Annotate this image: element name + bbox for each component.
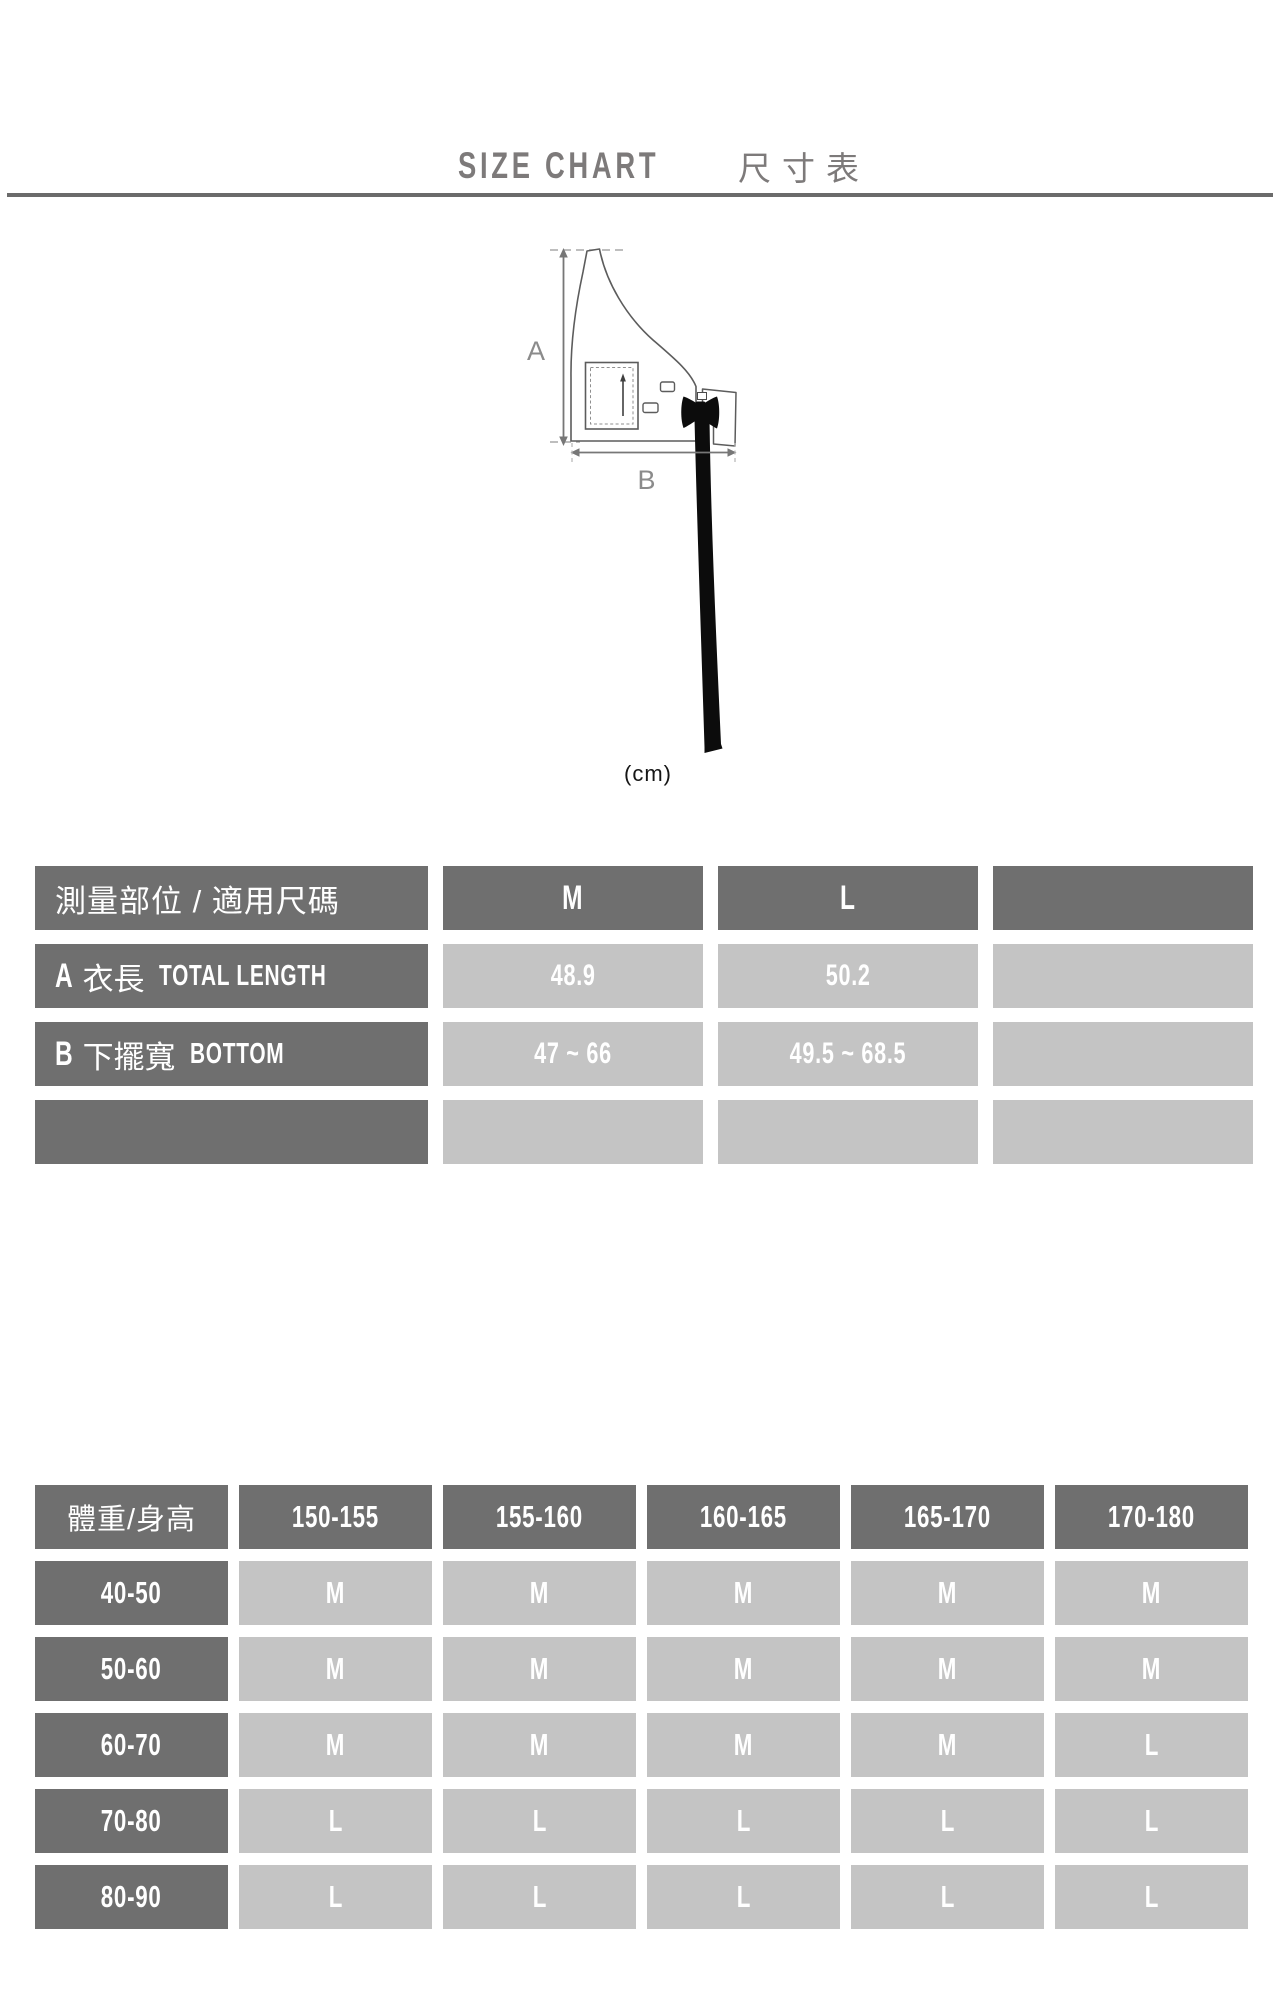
matrix-row-label-50-60: 50-60	[35, 1637, 228, 1701]
measure-value-bottom-m: 47 ~ 66	[443, 1022, 703, 1086]
bottom-width-arrow	[571, 443, 737, 464]
measure-header-label-text: 測量部位 / 適用尺碼	[55, 876, 340, 921]
matrix-row-label-80-90: 80-90	[35, 1865, 228, 1929]
matrix-cell: M	[239, 1561, 432, 1625]
matrix-header-label: 體重/身高	[35, 1485, 228, 1549]
matrix-cell: L	[443, 1789, 636, 1853]
matrix-cell: L	[647, 1789, 840, 1853]
matrix-cell: L	[1055, 1713, 1248, 1777]
matrix-cell: L	[239, 1865, 432, 1929]
height-weight-size-table: 體重/身高 150-155 155-160 160-165 165-170 17…	[35, 1485, 1248, 1929]
title-divider	[7, 193, 1273, 197]
loop-lower	[643, 403, 658, 413]
loop-upper	[661, 382, 675, 392]
measure-value-empty-m	[443, 1100, 703, 1164]
matrix-cell: M	[443, 1561, 636, 1625]
measure-header-empty	[993, 866, 1253, 930]
measure-header-label: 測量部位 / 適用尺碼	[35, 866, 428, 930]
matrix-header-165-170: 165-170	[851, 1485, 1044, 1549]
measure-header-size-m: M	[443, 866, 703, 930]
measure-row-label-total-length: A 衣長 TOTAL LENGTH	[35, 944, 428, 1008]
label-a: A	[527, 336, 545, 366]
measure-value-bottom-empty	[993, 1022, 1253, 1086]
matrix-cell: M	[239, 1637, 432, 1701]
matrix-header-170-180: 170-180	[1055, 1485, 1248, 1549]
measure-value-total-length-m: 48.9	[443, 944, 703, 1008]
matrix-header-160-165: 160-165	[647, 1485, 840, 1549]
matrix-cell: M	[647, 1637, 840, 1701]
measure-value-total-length-empty	[993, 944, 1253, 1008]
length-arrow	[559, 248, 568, 446]
matrix-cell: L	[1055, 1865, 1248, 1929]
waist-strap	[695, 419, 723, 753]
matrix-cell: M	[851, 1637, 1044, 1701]
matrix-cell: M	[1055, 1561, 1248, 1625]
page-title-en: SIZE CHART	[458, 145, 659, 187]
matrix-cell: L	[443, 1865, 636, 1929]
matrix-cell: L	[851, 1865, 1044, 1929]
matrix-cell: L	[239, 1789, 432, 1853]
strap-slider	[698, 393, 707, 400]
measure-row-label-empty	[35, 1100, 428, 1164]
garment-diagram: A B	[520, 240, 770, 800]
page-title: SIZE CHART 尺寸表	[458, 142, 870, 190]
matrix-row-label-40-50: 40-50	[35, 1561, 228, 1625]
matrix-cell: M	[647, 1713, 840, 1777]
matrix-header-150-155: 150-155	[239, 1485, 432, 1549]
measure-value-bottom-l: 49.5 ~ 68.5	[718, 1022, 978, 1086]
matrix-cell: M	[1055, 1637, 1248, 1701]
matrix-cell: M	[239, 1713, 432, 1777]
matrix-cell: M	[443, 1713, 636, 1777]
measure-table: 測量部位 / 適用尺碼 M L A 衣長 TOTAL LENGTH 48.9 5…	[35, 866, 1253, 1164]
measure-value-empty-l	[718, 1100, 978, 1164]
measure-value-total-length-l: 50.2	[718, 944, 978, 1008]
matrix-cell: M	[443, 1637, 636, 1701]
matrix-header-155-160: 155-160	[443, 1485, 636, 1549]
matrix-cell: M	[647, 1561, 840, 1625]
measure-header-size-l: L	[718, 866, 978, 930]
matrix-row-label-70-80: 70-80	[35, 1789, 228, 1853]
matrix-cell: L	[1055, 1789, 1248, 1853]
unit-note: (cm)	[624, 761, 672, 786]
measure-row-label-bottom: B 下擺寬 BOTTOM	[35, 1022, 428, 1086]
size-chart-page: SIZE CHART 尺寸表 A	[0, 0, 1280, 1991]
label-b: B	[637, 465, 655, 495]
page-title-zh: 尺寸表	[738, 142, 870, 190]
pocket	[586, 363, 639, 430]
matrix-cell: M	[851, 1561, 1044, 1625]
matrix-cell: L	[647, 1865, 840, 1929]
matrix-cell: M	[851, 1713, 1044, 1777]
matrix-row-label-60-70: 60-70	[35, 1713, 228, 1777]
measure-value-empty-empty	[993, 1100, 1253, 1164]
matrix-cell: L	[851, 1789, 1044, 1853]
